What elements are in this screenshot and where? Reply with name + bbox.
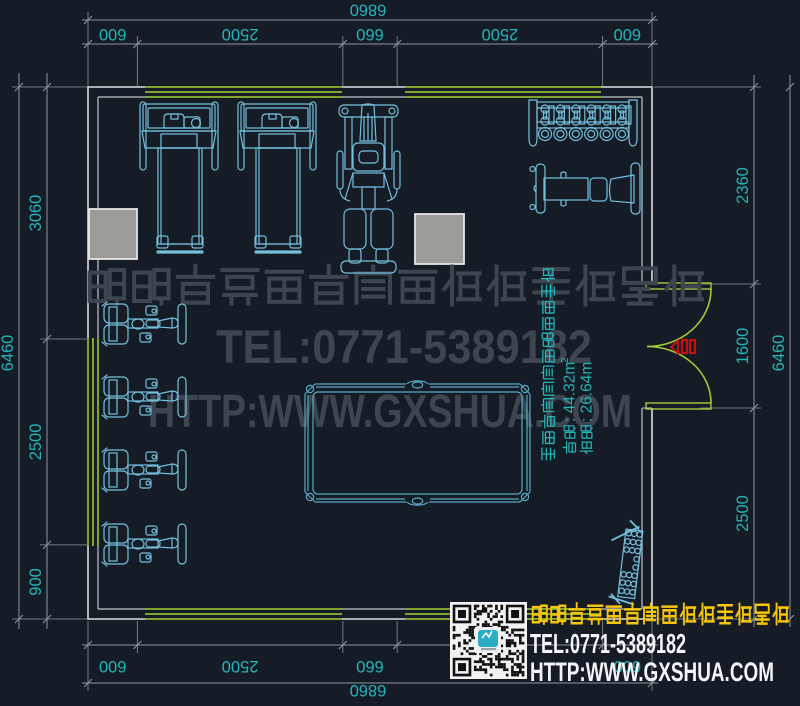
svg-text:6860: 6860 <box>350 1 387 19</box>
svg-text:2500: 2500 <box>222 657 259 675</box>
svg-text:660: 660 <box>356 657 384 675</box>
svg-text:1600: 1600 <box>734 328 752 365</box>
svg-text:: 44.32m: : 44.32m <box>562 362 579 422</box>
svg-text:660: 660 <box>356 25 384 43</box>
svg-text:3060: 3060 <box>27 195 45 232</box>
svg-text:6460: 6460 <box>0 335 17 372</box>
svg-text:900: 900 <box>27 568 45 596</box>
svg-text:6860: 6860 <box>350 681 387 699</box>
svg-text:HTTP:WWW.GXSHUA.COM: HTTP:WWW.GXSHUA.COM <box>148 385 632 437</box>
svg-text:TEL:0771-5389182: TEL:0771-5389182 <box>216 320 592 373</box>
svg-text:: 26.64m: : 26.64m <box>579 362 596 422</box>
svg-text:2500: 2500 <box>734 495 752 532</box>
svg-text:600: 600 <box>614 25 642 43</box>
svg-text:6460: 6460 <box>770 335 788 372</box>
svg-text:600: 600 <box>99 657 127 675</box>
svg-text:2360: 2360 <box>734 167 752 204</box>
svg-text:2500: 2500 <box>222 25 259 43</box>
svg-text:2500: 2500 <box>27 424 45 461</box>
svg-text:2500: 2500 <box>482 25 519 43</box>
svg-text:600: 600 <box>99 25 127 43</box>
svg-text:TEL:0771-5389182: TEL:0771-5389182 <box>530 628 686 659</box>
svg-text:2: 2 <box>560 357 571 363</box>
svg-text:HTTP:WWW.GXSHUA.COM: HTTP:WWW.GXSHUA.COM <box>530 657 774 687</box>
